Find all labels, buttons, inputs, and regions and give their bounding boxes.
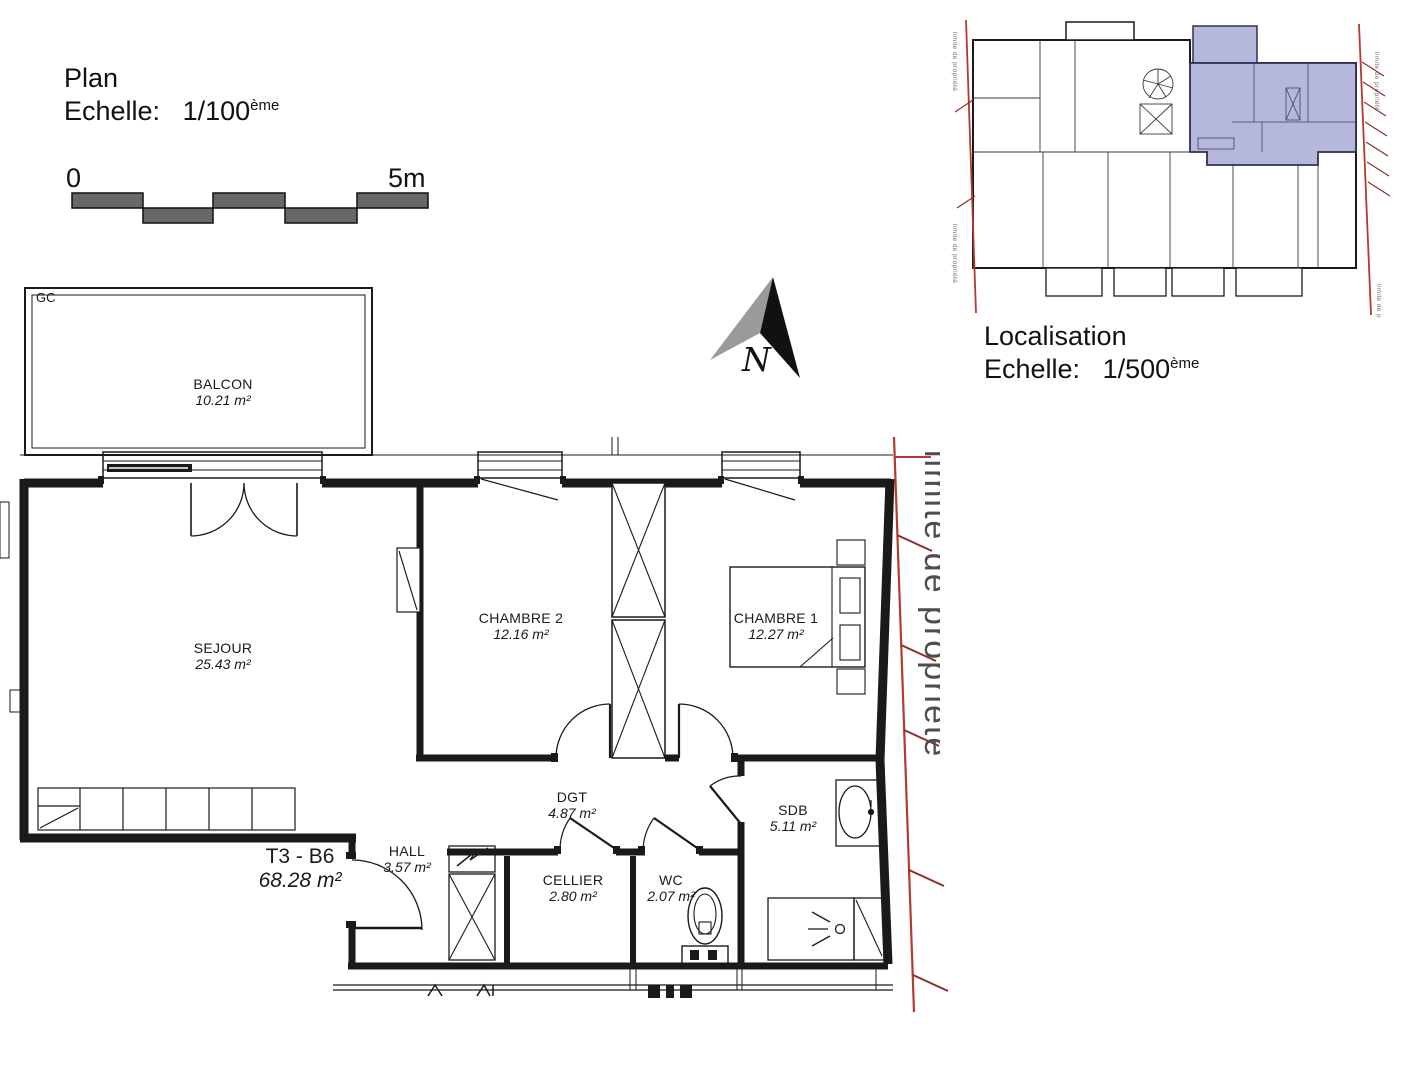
room-name: BALCON xyxy=(193,376,252,392)
property-limit-label-mini-left-bottom: limite de propriété xyxy=(951,224,958,283)
room-name: CELLIER xyxy=(543,872,603,888)
localisation-scale: Echelle: 1/500ème xyxy=(984,353,1199,386)
room-name: CHAMBRE 1 xyxy=(734,610,818,626)
bottom-exterior xyxy=(333,966,893,996)
room-area: 2.07 m² xyxy=(647,888,694,904)
room-label-dgt: DGT 4.87 m² xyxy=(548,789,595,821)
room-label-cellier: CELLIER 2.80 m² xyxy=(543,872,603,904)
hall-closet xyxy=(449,874,495,960)
wall-hatch-dashes xyxy=(648,985,692,998)
localisation-plan xyxy=(955,20,1390,315)
localisation-title: Localisation xyxy=(984,320,1199,353)
kitchen-counter xyxy=(38,788,295,830)
room-area: 2.80 m² xyxy=(543,888,603,904)
floorplan-sheet: Plan Echelle: 1/100ème Localisation Eche… xyxy=(0,0,1409,1080)
room-label-sdb: SDB 5.11 m² xyxy=(770,802,816,834)
room-label-chambre1: CHAMBRE 1 12.27 m² xyxy=(734,610,818,642)
room-label-hall: HALL 3.57 m² xyxy=(383,843,430,875)
room-label-sejour: SEJOUR 25.43 m² xyxy=(194,640,253,672)
property-limit-label-main: limite de propriété xyxy=(891,450,940,1025)
bedroom2-closet xyxy=(397,548,420,612)
highlighted-unit xyxy=(1190,26,1356,165)
room-name: CHAMBRE 2 xyxy=(479,610,563,626)
room-name: SEJOUR xyxy=(194,640,253,656)
property-limit-label-mini-left-top: limite de propriété xyxy=(951,32,958,91)
room-name: WC xyxy=(647,872,694,888)
room-name: SDB xyxy=(770,802,816,818)
bedroom2-window xyxy=(478,452,562,500)
washbasin-icon xyxy=(836,780,882,846)
room-area: 3.57 m² xyxy=(383,859,430,875)
balcony-gc-tag: GC xyxy=(36,290,56,305)
room-area: 10.21 m² xyxy=(193,392,252,408)
apartment-code: T3 - B6 xyxy=(259,845,342,869)
apartment-area: 68.28 m² xyxy=(259,869,342,893)
plan-title: Plan xyxy=(64,62,279,95)
room-area: 4.87 m² xyxy=(548,805,595,821)
north-label: N xyxy=(742,340,771,379)
room-area: 5.11 m² xyxy=(770,818,816,834)
room-label-chambre2: CHAMBRE 2 12.16 m² xyxy=(479,610,563,642)
bedroom1-window xyxy=(722,452,800,500)
closet-column xyxy=(612,483,665,758)
room-area: 12.16 m² xyxy=(479,626,563,642)
plan-scale: Echelle: 1/100ème xyxy=(64,95,279,128)
shower-icon xyxy=(768,898,884,960)
scale-bar xyxy=(72,193,428,223)
property-limit-label-mini-right-top: limite de propriété xyxy=(1373,52,1380,111)
scale-start-label: 0 xyxy=(66,163,81,194)
bay-window xyxy=(103,452,322,536)
plan-drawing xyxy=(0,0,1409,1080)
property-limit-label-mini-right-bottom: limite de propriété xyxy=(1375,284,1382,318)
room-label-wc: WC 2.07 m² xyxy=(647,872,694,904)
localisation-title-block: Localisation Echelle: 1/500ème xyxy=(984,320,1199,387)
scale-end-label: 5m xyxy=(388,163,426,194)
main-plan xyxy=(0,288,893,998)
room-area: 25.43 m² xyxy=(194,656,253,672)
walls xyxy=(20,479,891,964)
balcony-outline xyxy=(25,288,372,455)
room-area: 12.27 m² xyxy=(734,626,818,642)
room-name: DGT xyxy=(548,789,595,805)
room-name: HALL xyxy=(383,843,430,859)
plan-title-block: Plan Echelle: 1/100ème xyxy=(64,62,279,129)
door-jambs xyxy=(98,476,804,928)
apartment-label: T3 - B6 68.28 m² xyxy=(259,845,342,893)
room-label-balcon: BALCON 10.21 m² xyxy=(193,376,252,408)
